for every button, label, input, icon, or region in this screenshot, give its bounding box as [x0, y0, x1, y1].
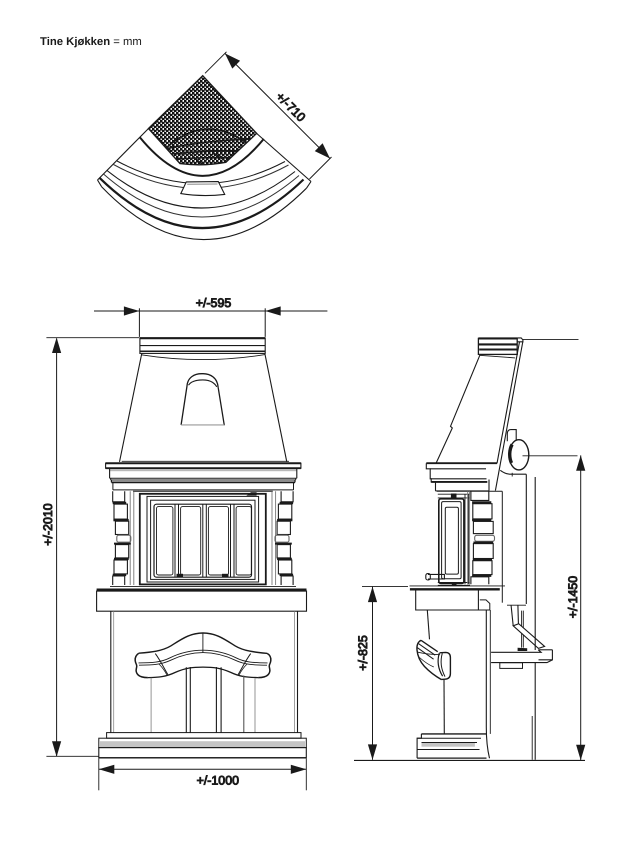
svg-text:+/-1000: +/-1000 — [197, 774, 239, 788]
svg-text:+/-2010: +/-2010 — [41, 503, 55, 545]
svg-text:+/-825: +/-825 — [356, 635, 370, 671]
svg-text:Tine Kjøkken = mm: Tine Kjøkken = mm — [40, 36, 142, 48]
svg-text:+/-1450: +/-1450 — [566, 576, 580, 618]
svg-text:+/-595: +/-595 — [196, 296, 232, 310]
